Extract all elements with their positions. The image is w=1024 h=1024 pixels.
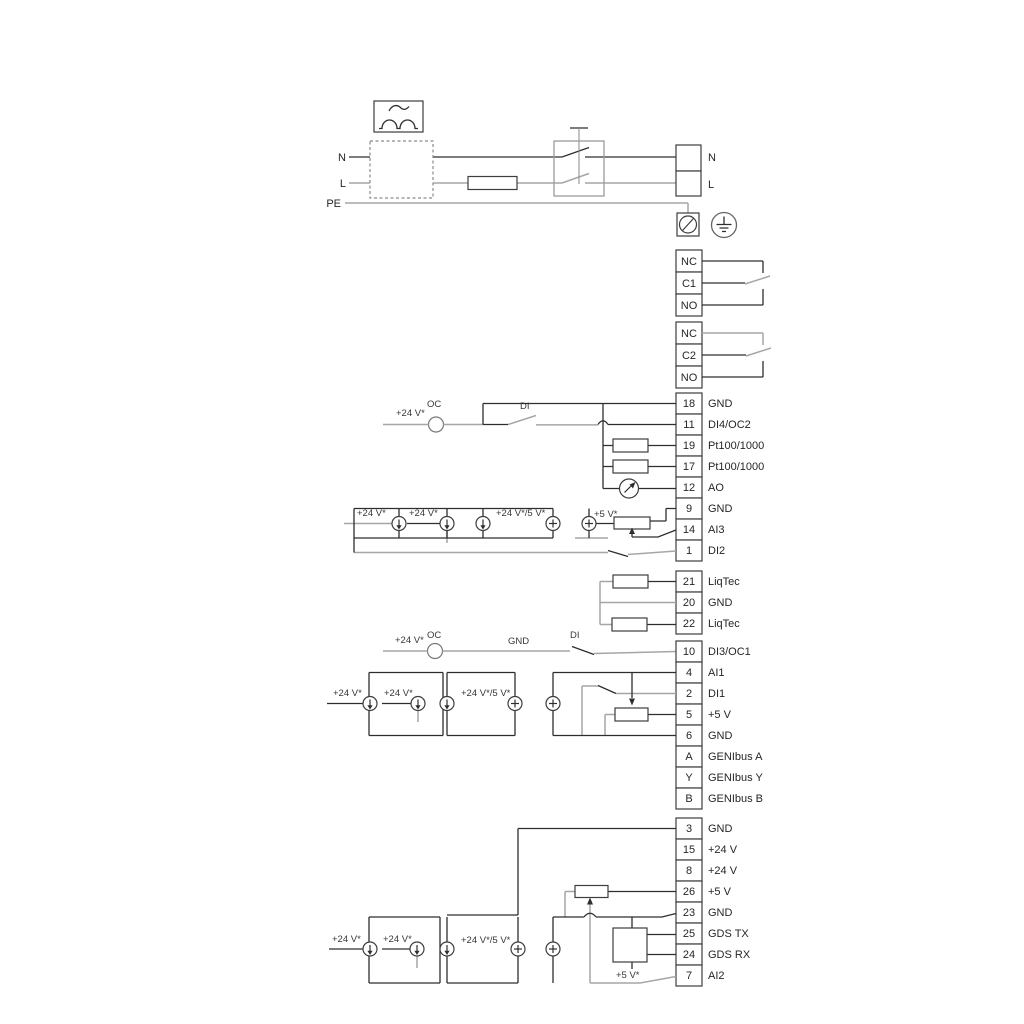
gnd-label: GND [508, 636, 529, 647]
terminal-number: 1 [686, 545, 692, 557]
terminal-label: GENIbus A [708, 751, 763, 763]
terminal-label: LiqTec [708, 618, 740, 630]
terminal-label: +24 V [708, 844, 738, 856]
terminal-label: LiqTec [708, 576, 740, 588]
relay-2-block: NC C2 NO [676, 322, 771, 388]
terminal-strip-1: 18 GND 11 DI4/OC2 19 Pt100/1000 17 Pt100… [676, 393, 764, 561]
v24-label: +24 V* [332, 934, 361, 945]
terminal-number: NO [681, 300, 698, 312]
resistor-icon [613, 575, 648, 588]
terminal-number: 4 [686, 667, 692, 679]
terminal-strip-3: 10 DI3/OC1 4 AI1 2 DI1 5 +5 V 6 GND A GE… [676, 641, 763, 809]
terminal-number: 20 [683, 597, 695, 609]
wiper-arrow-icon [587, 898, 593, 905]
terminal-number: 8 [686, 865, 692, 877]
terminal-number: 3 [686, 823, 692, 835]
terminal-label: DI1 [708, 688, 725, 700]
terminal-label: GND [708, 730, 733, 742]
relay-arm [745, 276, 770, 284]
di-label: DI [570, 630, 580, 641]
terminal-label: GND [708, 597, 733, 609]
terminal-number: 10 [683, 646, 695, 658]
terminal-number: A [685, 751, 693, 763]
ai1-option-group: +24 V* +24 V* +24 V*/5 V* [327, 673, 676, 736]
voltage-source-icon [582, 517, 596, 531]
terminal-number: NC [681, 256, 697, 268]
voltage-source-icon [546, 517, 560, 531]
gds-sensor-box [613, 928, 647, 962]
earth-icon [712, 213, 737, 238]
current-source-icon [392, 517, 406, 531]
v24-label: +24 V* [333, 688, 362, 699]
mains-terminal-block: N L [676, 145, 716, 196]
terminal-number: B [685, 793, 692, 805]
terminal-number: 18 [683, 398, 695, 410]
terminal-label: +5 V [708, 709, 732, 721]
n-out-label: N [708, 152, 716, 164]
terminal-number: 25 [683, 928, 695, 940]
terminal-number: 21 [683, 576, 695, 588]
pe-label: PE [326, 198, 341, 210]
oc-symbol [428, 644, 443, 659]
current-source-icon [476, 517, 490, 531]
terminal-label: GND [708, 398, 733, 410]
oc-label: OC [427, 630, 441, 641]
terminal-label: GND [708, 823, 733, 835]
terminal-label: DI4/OC2 [708, 419, 751, 431]
wiring-diagram: N L PE N L [0, 0, 1024, 1024]
current-source-icon [440, 517, 454, 531]
current-source-icon [363, 942, 377, 956]
v24-label: +24 V* [396, 408, 425, 419]
terminal-number: 15 [683, 844, 695, 856]
terminal-label: +24 V [708, 865, 738, 877]
terminal-cell [676, 145, 701, 171]
terminal-number: 2 [686, 688, 692, 700]
relay-contact-icon [702, 261, 763, 305]
oc-symbol [429, 417, 444, 432]
potentiometer-icon [575, 886, 608, 898]
potentiometer-icon [615, 708, 648, 721]
rcd-box [370, 141, 433, 198]
terminal-cell [676, 171, 701, 196]
wire [327, 673, 676, 736]
fuse-icon [468, 177, 517, 190]
terminal-number: 7 [686, 970, 692, 982]
terminal-label: GDS TX [708, 928, 749, 940]
terminal-number: C2 [682, 350, 696, 362]
current-source-icon [440, 697, 454, 711]
terminal-number: Y [685, 772, 693, 784]
v5-label: +5 V* [616, 970, 640, 981]
ao-meter-icon [620, 479, 639, 498]
terminal-label: Pt100/1000 [708, 440, 764, 452]
terminal-strip-2: 21 LiqTec 20 GND 22 LiqTec [600, 571, 740, 634]
terminal-label: GDS RX [708, 949, 751, 961]
v24-label: +24 V* [395, 635, 424, 646]
terminal-number: 26 [683, 886, 695, 898]
terminal-label: Pt100/1000 [708, 461, 764, 473]
wiper-arrow-icon [629, 699, 635, 706]
relay-contact-icon [702, 355, 763, 377]
voltage-source-icon [546, 942, 560, 956]
terminal-label: AO [708, 482, 724, 494]
current-source-icon [411, 697, 425, 711]
v24-label: +24 V* [357, 508, 386, 519]
mains-section: N L PE N L [326, 101, 736, 238]
v24-5v-label: +24 V*/5 V* [461, 935, 511, 946]
voltage-source-icon [546, 697, 560, 711]
pulse-current-icon [374, 101, 423, 132]
l-in-label: L [340, 178, 346, 190]
row18-11-wiring: +24 V* OC DI [383, 399, 676, 498]
terminal-label: DI3/OC1 [708, 646, 751, 658]
oc-label: OC [427, 399, 441, 410]
di-switch [572, 647, 594, 655]
terminal-number: NO [681, 372, 698, 384]
di-label: DI [520, 401, 530, 412]
potentiometer-icon [614, 517, 650, 529]
terminal-label: +5 V [708, 886, 732, 898]
v24-label: +24 V* [409, 508, 438, 519]
terminal-number: 5 [686, 709, 692, 721]
terminal-label: AI3 [708, 524, 725, 536]
terminal-label: GENIbus B [708, 793, 763, 805]
wire [702, 333, 771, 356]
ai3-option-group: +24 V* +24 V* +24 V*/5 V* +5 V* [344, 508, 676, 557]
terminal-number: C1 [682, 278, 696, 290]
terminal-number: 22 [683, 618, 695, 630]
row10-wiring: +24 V* OC GND DI [383, 630, 676, 659]
current-source-icon [363, 697, 377, 711]
voltage-source-icon [508, 697, 522, 711]
terminal-label: AI2 [708, 970, 725, 982]
terminal-number: 19 [683, 440, 695, 452]
terminal-number: 12 [683, 482, 695, 494]
v24-5v-label: +24 V*/5 V* [496, 508, 546, 519]
resistor-icon [612, 618, 647, 631]
v24-label: +24 V* [384, 688, 413, 699]
current-source-icon [410, 942, 424, 956]
v24-label: +24 V* [383, 934, 412, 945]
terminal-number: 9 [686, 503, 692, 515]
terminal-label: GENIbus Y [708, 772, 763, 784]
relay-1-block: NC C1 NO [676, 250, 770, 316]
n-in-label: N [338, 152, 346, 164]
l-out-label: L [708, 179, 714, 191]
terminal-number: 6 [686, 730, 692, 742]
pe-terminal-icon [677, 213, 699, 236]
v24-5v-label: +24 V*/5 V* [461, 688, 511, 699]
terminal-number: 24 [683, 949, 695, 961]
terminal-number: NC [681, 328, 697, 340]
resistor-icon [613, 439, 648, 452]
wire [383, 651, 676, 654]
terminal-number: 17 [683, 461, 695, 473]
terminal-label: GND [708, 907, 733, 919]
terminal-label: DI2 [708, 545, 725, 557]
terminal-label: AI1 [708, 667, 725, 679]
current-source-icon [440, 942, 454, 956]
terminal-strip-4: 3 GND 15 +24 V 8 +24 V 26 +5 V 23 GND 25… [676, 818, 751, 986]
terminal-label: GND [708, 503, 733, 515]
voltage-source-icon [511, 942, 525, 956]
ai2-option-group: +24 V* +24 V* +24 V*/5 V* +5 V* [329, 829, 676, 984]
resistor-icon [613, 460, 648, 473]
terminal-number: 11 [683, 419, 694, 431]
terminal-number: 23 [683, 907, 695, 919]
terminal-number: 14 [683, 524, 695, 536]
